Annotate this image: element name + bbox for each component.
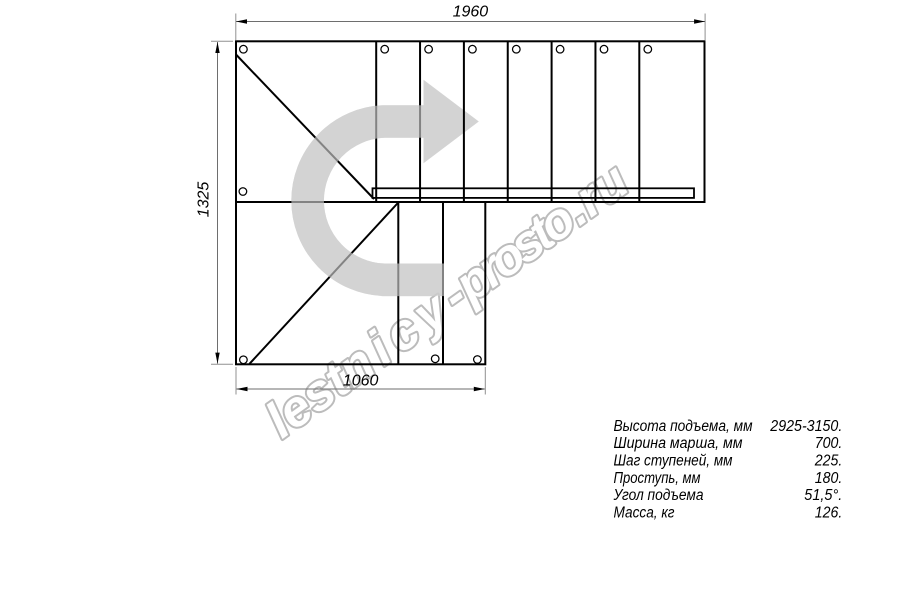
svg-text:1960: 1960 [453,3,489,20]
svg-text:Проступь, мм: Проступь, мм [614,470,701,487]
svg-text:1325: 1325 [196,182,213,218]
svg-text:Высота подъема, мм: Высота подъема, мм [614,418,753,435]
svg-text:180.: 180. [815,470,843,487]
svg-text:51,5°.: 51,5°. [804,487,842,504]
svg-text:126.: 126. [815,504,843,521]
svg-text:225.: 225. [814,453,842,470]
svg-text:2925-3150.: 2925-3150. [769,418,842,435]
svg-text:Ширина марша, мм: Ширина марша, мм [614,435,743,452]
svg-text:1060: 1060 [343,372,379,389]
svg-text:Угол подъема: Угол подъема [613,487,704,504]
svg-text:700.: 700. [815,435,843,452]
svg-text:Шаг ступеней, мм: Шаг ступеней, мм [614,453,733,470]
svg-text:Масса, кг: Масса, кг [614,504,675,521]
